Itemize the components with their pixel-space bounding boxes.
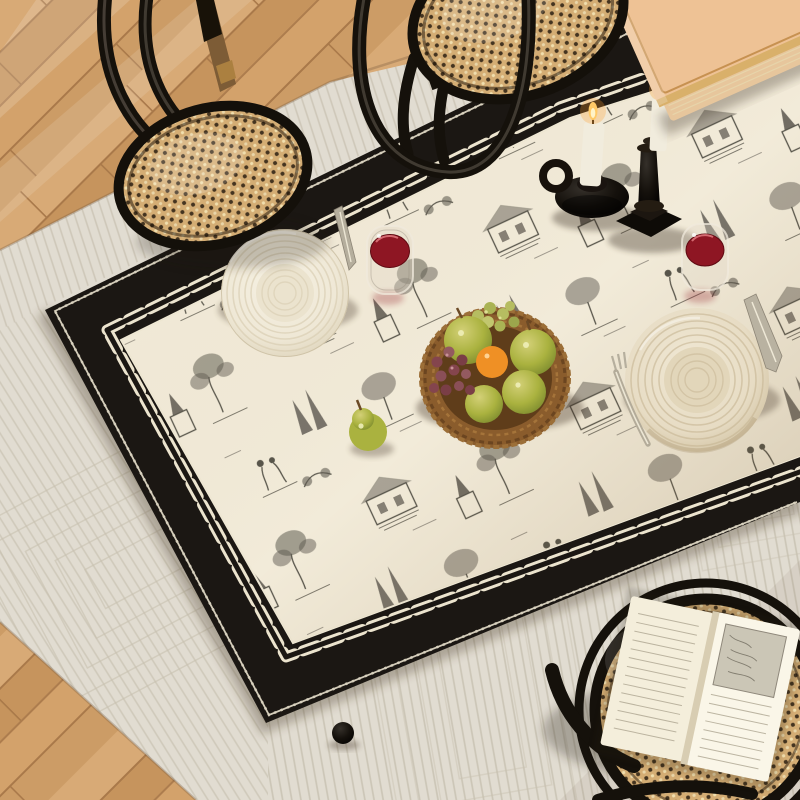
candle-wax [580,121,605,186]
orange [476,346,508,378]
photo-stage [0,0,800,800]
book-illustration [713,624,787,698]
wine-surface-2 [686,234,724,266]
dining-scene [0,0,800,800]
wine-surface [371,235,410,268]
